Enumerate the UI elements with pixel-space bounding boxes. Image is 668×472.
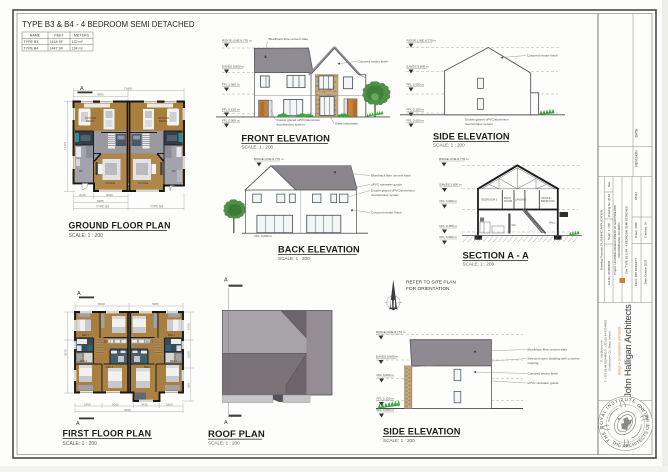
svg-text:SCALE: 1 : 200: SCALE: 1 : 200 bbox=[69, 233, 104, 239]
svg-text:RIDGE LINE 8.770 m: RIDGE LINE 8.770 m bbox=[407, 39, 437, 43]
svg-text:Double glazed uPVC/aluminium: Double glazed uPVC/aluminium bbox=[465, 118, 509, 122]
svg-text:WC: WC bbox=[172, 170, 176, 173]
svg-text:EAVES 5.800 m: EAVES 5.800 m bbox=[222, 65, 245, 69]
svg-text:Drawing Purpose: PLANNING AP: Drawing Purpose: PLANNING APPLICATION bbox=[600, 210, 604, 270]
svg-text:uPVC rainwater goods: uPVC rainwater goods bbox=[371, 183, 402, 187]
svg-text:FFL 3.000 m: FFL 3.000 m bbox=[377, 373, 395, 377]
svg-text:2400: 2400 bbox=[84, 402, 91, 406]
svg-text:FEET: FEET bbox=[54, 34, 64, 38]
svg-text:RIDGE LINE 8.770 m: RIDGE LINE 8.770 m bbox=[254, 157, 284, 161]
svg-text:door/window system: door/window system bbox=[277, 123, 305, 127]
svg-text:TYPE B3: TYPE B3 bbox=[24, 40, 39, 44]
svg-text:TYPE B4: TYPE B4 bbox=[150, 205, 163, 209]
svg-text:LOUNGE: LOUNGE bbox=[105, 182, 116, 185]
svg-text:950: 950 bbox=[187, 383, 191, 388]
svg-text:11410: 11410 bbox=[63, 142, 67, 150]
svg-text:door/window system: door/window system bbox=[465, 122, 493, 126]
svg-text:5090: 5090 bbox=[98, 302, 105, 306]
svg-text:5060: 5060 bbox=[112, 402, 119, 406]
svg-text:capping: capping bbox=[528, 361, 539, 365]
svg-text:TYPE B3: TYPE B3 bbox=[96, 205, 109, 209]
svg-text:1447 SF: 1447 SF bbox=[50, 46, 64, 50]
svg-text:uPVC rainwater goods: uPVC rainwater goods bbox=[528, 381, 559, 385]
svg-text:Drawn: CMC: Drawn: CMC bbox=[634, 222, 638, 238]
svg-text:SCALE: 1 : 200: SCALE: 1 : 200 bbox=[241, 144, 273, 149]
svg-text:FFL 0.000 m: FFL 0.000 m bbox=[255, 234, 273, 238]
svg-text:Title: TYPE B3 & B4 - 4 BEDRO: Title: TYPE B3 & B4 - 4 BEDROOM SEMI DET… bbox=[625, 206, 629, 274]
svg-text:Coloured render finish: Coloured render finish bbox=[358, 60, 389, 64]
svg-text:FIRST FLOOR PLAN: FIRST FLOOR PLAN bbox=[63, 429, 152, 439]
svg-text:LANDING: LANDING bbox=[515, 198, 527, 202]
svg-text:Charlestown, Co. Mayo, Ireland: Charlestown, Co. Mayo, Ireland bbox=[608, 331, 612, 371]
svg-text:9975: 9975 bbox=[64, 349, 68, 356]
svg-text:FFL 0.150 m: FFL 0.150 m bbox=[440, 224, 458, 228]
svg-text:RIDGE LINE 8.770 m: RIDGE LINE 8.770 m bbox=[376, 330, 406, 334]
svg-text:Scale: 1 : 200: Scale: 1 : 200 bbox=[607, 223, 611, 241]
svg-text:door/window system: door/window system bbox=[371, 193, 399, 197]
svg-text:FFL 0.150 m: FFL 0.150 m bbox=[407, 108, 425, 112]
svg-text:A: A bbox=[76, 421, 80, 427]
svg-text:BED 4: BED 4 bbox=[170, 360, 178, 363]
svg-text:6985: 6985 bbox=[97, 93, 104, 97]
svg-text:HALL: HALL bbox=[549, 221, 556, 225]
svg-text:A: A bbox=[224, 420, 228, 426]
svg-text:SCALE: 1 : 200: SCALE: 1 : 200 bbox=[433, 143, 465, 148]
svg-text:5090: 5090 bbox=[106, 193, 113, 197]
svg-text:Date: October 2022: Date: October 2022 bbox=[644, 259, 648, 284]
svg-text:FFL 3.000 m: FFL 3.000 m bbox=[407, 83, 425, 87]
svg-text:FFL 3.000 m: FFL 3.000 m bbox=[222, 83, 240, 87]
svg-text:A: A bbox=[80, 86, 84, 92]
svg-text:2015: 2015 bbox=[79, 193, 86, 197]
svg-text:BED 2: BED 2 bbox=[146, 341, 154, 344]
svg-text:SIDE ELEVATION: SIDE ELEVATION bbox=[433, 132, 510, 142]
svg-text:FFL 0.150 m: FFL 0.150 m bbox=[377, 397, 395, 401]
svg-text:Blue/black fibre cement slate: Blue/black fibre cement slate bbox=[371, 174, 411, 178]
svg-text:Client: RAY BARRETT: Client: RAY BARRETT bbox=[634, 258, 638, 286]
svg-text:EAVES 5.800 m: EAVES 5.800 m bbox=[407, 65, 430, 69]
svg-text:9960: 9960 bbox=[124, 408, 131, 412]
svg-text:TYPE B3 & B4 - 4 BEDROOM SEMI: TYPE B3 & B4 - 4 BEDROOM SEMI DETACHED bbox=[22, 20, 195, 29]
svg-text:FFL 0.000 m: FFL 0.000 m bbox=[222, 119, 240, 123]
svg-text:SCALE: 1 : 200: SCALE: 1 : 200 bbox=[463, 262, 495, 267]
svg-text:BEDROOM 3: BEDROOM 3 bbox=[482, 198, 498, 202]
svg-text:5080: 5080 bbox=[152, 302, 159, 306]
svg-text:1418 SF: 1418 SF bbox=[50, 40, 64, 44]
svg-text:Coloured render finish: Coloured render finish bbox=[371, 211, 402, 215]
svg-text:Job No: 2019/09/05: Job No: 2019/09/05 bbox=[607, 260, 611, 285]
svg-text:DATE: DATE bbox=[635, 128, 639, 138]
svg-text:BEDROOM: BEDROOM bbox=[541, 199, 554, 203]
svg-text:A: A bbox=[77, 291, 81, 297]
svg-text:BED 3: BED 3 bbox=[144, 366, 152, 369]
svg-text:DINING: DINING bbox=[159, 120, 168, 123]
svg-text:FFL 3.000 m: FFL 3.000 m bbox=[440, 199, 458, 203]
svg-text:T: +353 (0) 94 92544893 F: +: T: +353 (0) 94 92544893 F: +353 (0) 94 9… bbox=[604, 319, 608, 382]
svg-text:ROOM: ROOM bbox=[504, 199, 512, 203]
svg-text:BED 1: BED 1 bbox=[82, 334, 90, 337]
svg-text:Coloured render finish: Coloured render finish bbox=[528, 372, 559, 376]
svg-text:Glass balustrade: Glass balustrade bbox=[335, 122, 358, 126]
svg-text:SECTION A - A: SECTION A - A bbox=[463, 250, 530, 261]
svg-text:3530: 3530 bbox=[141, 402, 148, 406]
svg-text:METERS: METERS bbox=[74, 34, 90, 38]
svg-text:WC: WC bbox=[79, 170, 83, 173]
svg-text:BED 2: BED 2 bbox=[104, 341, 112, 344]
svg-text:Blue/black fibre cement slate: Blue/black fibre cement slate bbox=[528, 348, 568, 352]
svg-text:GROUND FLOOR PLAN: GROUND FLOOR PLAN bbox=[69, 221, 171, 231]
svg-text:FFL 0.000 m: FFL 0.000 m bbox=[440, 235, 458, 239]
svg-text:BED 4: BED 4 bbox=[80, 360, 88, 363]
svg-text:REVISION: REVISION bbox=[635, 150, 639, 167]
svg-text:EAVES 5.800 m: EAVES 5.800 m bbox=[376, 355, 399, 359]
svg-text:LOUNGE: LOUNGE bbox=[138, 182, 149, 185]
svg-text:Coloured render finish: Coloured render finish bbox=[527, 54, 558, 58]
svg-text:SCALE: 1 : 200: SCALE: 1 : 200 bbox=[208, 441, 240, 446]
svg-text:2350: 2350 bbox=[187, 351, 191, 358]
svg-text:SCALE: 1 : 200: SCALE: 1 : 200 bbox=[383, 438, 415, 443]
svg-text:2800: 2800 bbox=[166, 402, 173, 406]
svg-text:ROOF PLAN: ROOF PLAN bbox=[208, 429, 265, 440]
svg-text:REFER TO SITE PLAN: REFER TO SITE PLAN bbox=[406, 280, 456, 286]
svg-text:BED 1: BED 1 bbox=[168, 334, 176, 337]
svg-text:Double glazed uPVC/aluminium: Double glazed uPVC/aluminium bbox=[277, 118, 321, 122]
svg-text:A: A bbox=[224, 278, 228, 284]
svg-text:BED 3: BED 3 bbox=[106, 366, 114, 369]
svg-text:FRONT ELEVATION: FRONT ELEVATION bbox=[241, 133, 330, 144]
svg-text:DINING: DINING bbox=[86, 120, 95, 123]
svg-text:FFL 0.150 m: FFL 0.150 m bbox=[222, 108, 240, 112]
svg-text:TYPE B4: TYPE B4 bbox=[24, 46, 39, 50]
svg-text:PA112: PA112 bbox=[634, 192, 638, 200]
svg-text:SCALE: 1 : 200: SCALE: 1 : 200 bbox=[278, 256, 310, 261]
svg-text:design + conservation architec: design + conservation architects bbox=[618, 326, 622, 375]
svg-text:Rev:: Rev: bbox=[607, 181, 611, 187]
svg-text:Checked: JH: Checked: JH bbox=[644, 222, 648, 238]
svg-text:EAVES 5.800 m: EAVES 5.800 m bbox=[440, 183, 463, 187]
svg-text:1060: 1060 bbox=[187, 323, 191, 330]
svg-text:RIDGE LINE 8.770 m: RIDGE LINE 8.770 m bbox=[439, 157, 469, 161]
svg-text:E: info@jharch.ie: E: info@jharch.ie bbox=[600, 340, 604, 362]
svg-text:FFL 0.000 m: FFL 0.000 m bbox=[407, 119, 425, 123]
svg-text:CROSSMOLINA, CO MAYO: CROSSMOLINA, CO MAYO bbox=[617, 222, 621, 258]
svg-text:6985: 6985 bbox=[97, 199, 104, 203]
svg-text:John Halligan Architects: John Halligan Architects bbox=[623, 304, 633, 398]
svg-text:134 m²: 134 m² bbox=[72, 46, 84, 50]
svg-text:13400: 13400 bbox=[124, 87, 133, 91]
svg-text:NAME: NAME bbox=[30, 34, 41, 38]
svg-text:132 m²: 132 m² bbox=[72, 40, 84, 44]
svg-text:Blue/black fibre cement slate: Blue/black fibre cement slate bbox=[269, 37, 309, 41]
svg-text:SIDE ELEVATION: SIDE ELEVATION bbox=[383, 427, 461, 437]
svg-text:FOR ORIENTATION: FOR ORIENTATION bbox=[406, 286, 450, 292]
svg-text:Drawing No: @ A3: Drawing No: @ A3 bbox=[607, 194, 611, 217]
svg-text:WC: WC bbox=[512, 223, 516, 227]
svg-text:BACK ELEVATION: BACK ELEVATION bbox=[278, 245, 360, 255]
svg-text:RIDGE LINE 8.770 m: RIDGE LINE 8.770 m bbox=[222, 39, 252, 43]
svg-text:SCALE: 1 : 200: SCALE: 1 : 200 bbox=[63, 441, 98, 447]
